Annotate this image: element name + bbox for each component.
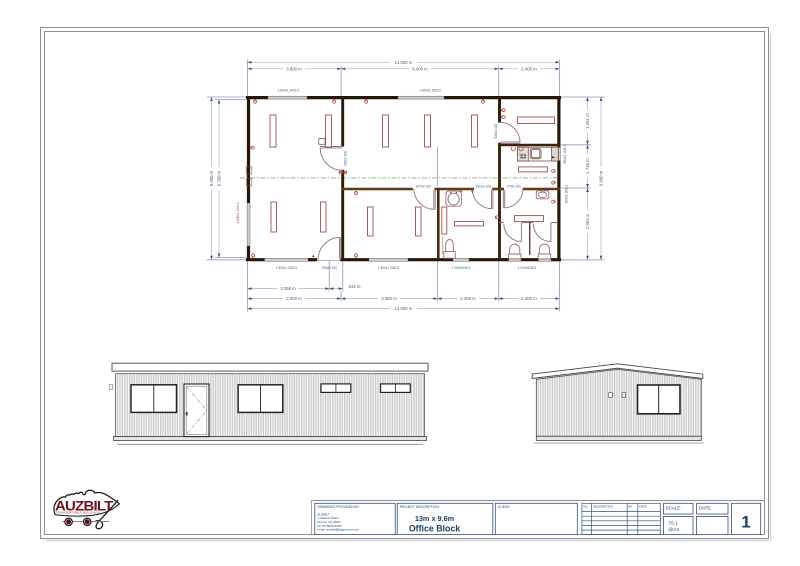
- svg-text:1 200x900LS: 1 200x900LS: [452, 266, 471, 270]
- svg-text:DESCRIPTION: DESCRIPTION: [593, 505, 613, 509]
- svg-text:820x2 100: 820x2 100: [476, 185, 491, 189]
- svg-text:CLIENT:: CLIENT:: [498, 505, 510, 509]
- svg-text:542 m: 542 m: [349, 284, 361, 289]
- svg-text:DRAWINGS PROVIDED BY:: DRAWINGS PROVIDED BY:: [317, 505, 359, 509]
- svg-text:6.400 m: 6.400 m: [412, 66, 428, 71]
- svg-text:2.400 m: 2.400 m: [460, 296, 476, 301]
- svg-text:2.903 m: 2.903 m: [585, 213, 590, 229]
- svg-text:13.000 m: 13.000 m: [395, 306, 413, 311]
- svg-text:1-800x1 200LS: 1-800x1 200LS: [277, 89, 299, 93]
- svg-text:13m x 9.6m: 13m x 9.6m: [415, 514, 455, 523]
- svg-text:13.000 m: 13.000 m: [395, 60, 413, 65]
- svg-text:1: 1: [741, 513, 750, 532]
- svg-text:1 800x1 200LS: 1 800x1 200LS: [236, 202, 240, 223]
- svg-text:1 800x1 200LS: 1 800x1 200LS: [378, 266, 399, 270]
- svg-text:SCALE :: SCALE :: [666, 506, 683, 511]
- svg-text:Office Block: Office Block: [409, 523, 460, 533]
- svg-text:3.900 m: 3.900 m: [286, 66, 302, 71]
- svg-text:PROJECT DESCRIPTION:: PROJECT DESCRIPTION:: [400, 505, 440, 509]
- svg-text:1 800x1 200LS: 1 800x1 200LS: [276, 266, 297, 270]
- svg-text:600x1 200LS: 600x1 200LS: [563, 145, 567, 164]
- svg-text:DATE:: DATE:: [699, 506, 712, 511]
- svg-text:900x2 100: 900x2 100: [344, 151, 348, 166]
- svg-text:2.400 m: 2.400 m: [521, 296, 537, 301]
- svg-text:770x2 100: 770x2 100: [506, 185, 521, 189]
- svg-text:3.358 m: 3.358 m: [280, 286, 296, 291]
- svg-text:TRANSPORTABLE BUILDINGS: TRANSPORTABLE BUILDINGS: [56, 511, 100, 515]
- svg-text:6.900 m: 6.900 m: [209, 170, 214, 186]
- svg-text:75:1: 75:1: [668, 521, 678, 527]
- svg-text:820x2 100: 820x2 100: [494, 123, 498, 138]
- svg-text:NO.: NO.: [583, 505, 588, 509]
- svg-text:1.746 m: 1.746 m: [585, 158, 590, 174]
- svg-text:1.961 m: 1.961 m: [585, 113, 590, 129]
- svg-text:3.900 m: 3.900 m: [286, 296, 302, 301]
- svg-text:6.700 m: 6.700 m: [217, 170, 222, 186]
- svg-text:6.900 m: 6.900 m: [599, 170, 604, 186]
- svg-text:900x2 100: 900x2 100: [322, 266, 337, 270]
- svg-text:DATE: DATE: [639, 505, 647, 509]
- svg-text:2.400 m: 2.400 m: [521, 66, 537, 71]
- svg-text:1-800x1 200LS: 1-800x1 200LS: [419, 89, 441, 93]
- svg-text:email: auzbilt@bigpond.net.au: email: auzbilt@bigpond.net.au: [317, 528, 359, 532]
- svg-text:870x2 100: 870x2 100: [416, 185, 431, 189]
- svg-text:MEAL: MEAL: [519, 153, 527, 157]
- svg-text:@A3: @A3: [668, 527, 679, 533]
- svg-text:BY: BY: [629, 505, 633, 509]
- svg-text:1 200x900LS: 1 200x900LS: [518, 266, 537, 270]
- svg-text:900x1 185LS: 900x1 185LS: [565, 185, 569, 204]
- svg-text:3.950 m: 3.950 m: [381, 296, 397, 301]
